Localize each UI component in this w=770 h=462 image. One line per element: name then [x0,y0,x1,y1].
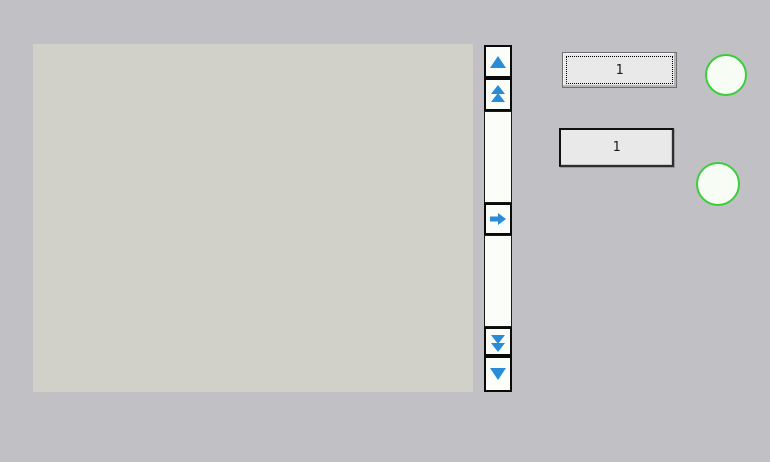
circle-indicator-top [705,54,747,96]
arrow-down-icon [489,367,507,381]
value-field[interactable]: 1 [559,128,674,167]
scroll-down-button[interactable] [484,356,512,392]
scroll-right-button[interactable] [484,203,512,235]
arrow-up-icon [489,55,507,69]
value-field-focused[interactable]: 1 [562,52,677,88]
canvas-panel[interactable] [33,44,473,392]
value-field-focused-text: 1 [616,63,624,78]
scroll-up-button[interactable] [484,45,512,78]
double-arrow-up-icon [489,85,507,105]
arrow-right-icon [489,212,507,226]
scroll-page-up-button[interactable] [484,78,512,111]
scroll-trough-upper[interactable] [484,111,512,203]
double-arrow-down-icon [489,332,507,352]
scroll-page-down-button[interactable] [484,327,512,356]
circle-indicator-bottom [696,162,740,206]
scroll-trough-lower[interactable] [484,235,512,327]
scroll-control-column [484,45,512,392]
value-field-text: 1 [613,140,621,155]
application-window: 1 1 [0,0,770,462]
